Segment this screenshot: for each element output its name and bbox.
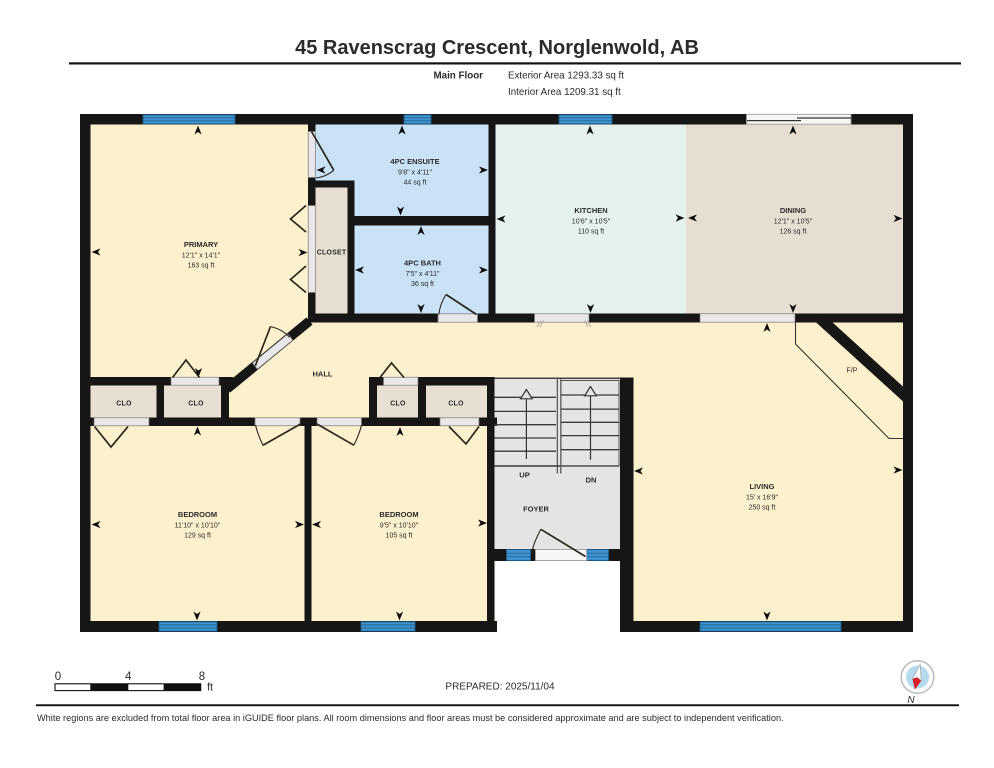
svg-text:Exterior Area 1293.33 sq ft: Exterior Area 1293.33 sq ft (508, 71, 624, 82)
svg-text:250 sq ft: 250 sq ft (749, 505, 776, 512)
svg-text:36 sq ft: 36 sq ft (411, 281, 434, 288)
svg-text:126 sq ft: 126 sq ft (780, 229, 807, 236)
svg-text:CLO: CLO (188, 401, 204, 408)
svg-text:12'1" x 14'1": 12'1" x 14'1" (182, 253, 221, 260)
svg-text:15' x 16'9": 15' x 16'9" (746, 495, 779, 502)
svg-text:FOYER: FOYER (523, 505, 549, 514)
svg-text:12'1" x 10'5": 12'1" x 10'5" (774, 219, 813, 226)
svg-text:F/P: F/P (847, 368, 858, 375)
svg-text:44 sq ft: 44 sq ft (404, 180, 427, 187)
svg-text:8: 8 (199, 671, 205, 683)
svg-text:ft: ft (207, 682, 213, 694)
svg-text:11'10" x 10'10": 11'10" x 10'10" (175, 523, 221, 530)
svg-text:White regions are excluded fro: White regions are excluded from total fl… (37, 713, 784, 723)
svg-text:DN: DN (586, 476, 597, 485)
svg-text:DINING: DINING (780, 206, 806, 215)
svg-text:BEDROOM: BEDROOM (379, 510, 418, 519)
svg-text:CLO: CLO (390, 401, 406, 408)
svg-text:CLO: CLO (116, 401, 132, 408)
svg-text:4PC BATH: 4PC BATH (404, 259, 441, 268)
svg-text:0: 0 (55, 671, 61, 683)
svg-text:110 sq ft: 110 sq ft (578, 229, 604, 236)
svg-text:PRIMARY: PRIMARY (184, 240, 218, 249)
svg-text:Main Floor: Main Floor (433, 71, 483, 82)
svg-text:7'5" x 4'11": 7'5" x 4'11" (406, 271, 440, 278)
svg-text:KITCHEN: KITCHEN (574, 206, 607, 215)
svg-text:CLOSET: CLOSET (317, 250, 347, 257)
svg-text:45 Ravenscrag Crescent, Norgle: 45 Ravenscrag Crescent, Norglenwold, AB (295, 37, 699, 59)
svg-text:PREPARED: 2025/11/04: PREPARED: 2025/11/04 (445, 682, 555, 693)
svg-text:BEDROOM: BEDROOM (178, 510, 217, 519)
svg-text:4PC ENSUITE: 4PC ENSUITE (390, 157, 439, 166)
svg-text:HALL: HALL (313, 370, 333, 379)
svg-text:10'6" x 10'5": 10'6" x 10'5" (572, 219, 611, 226)
svg-text:129 sq ft: 129 sq ft (184, 533, 211, 540)
svg-text:163 sq ft: 163 sq ft (188, 263, 215, 270)
svg-text:105 sq ft: 105 sq ft (386, 533, 413, 540)
svg-text:Interior Area 1209.31 sq ft: Interior Area 1209.31 sq ft (508, 87, 621, 98)
svg-text:CLO: CLO (448, 401, 464, 408)
svg-text:LIVING: LIVING (749, 482, 774, 491)
svg-text:4: 4 (125, 671, 132, 683)
svg-text:9'8" x 4'11": 9'8" x 4'11" (398, 170, 432, 177)
svg-text:9'5" x 10'10": 9'5" x 10'10" (380, 523, 419, 530)
svg-text:UP: UP (519, 471, 529, 480)
